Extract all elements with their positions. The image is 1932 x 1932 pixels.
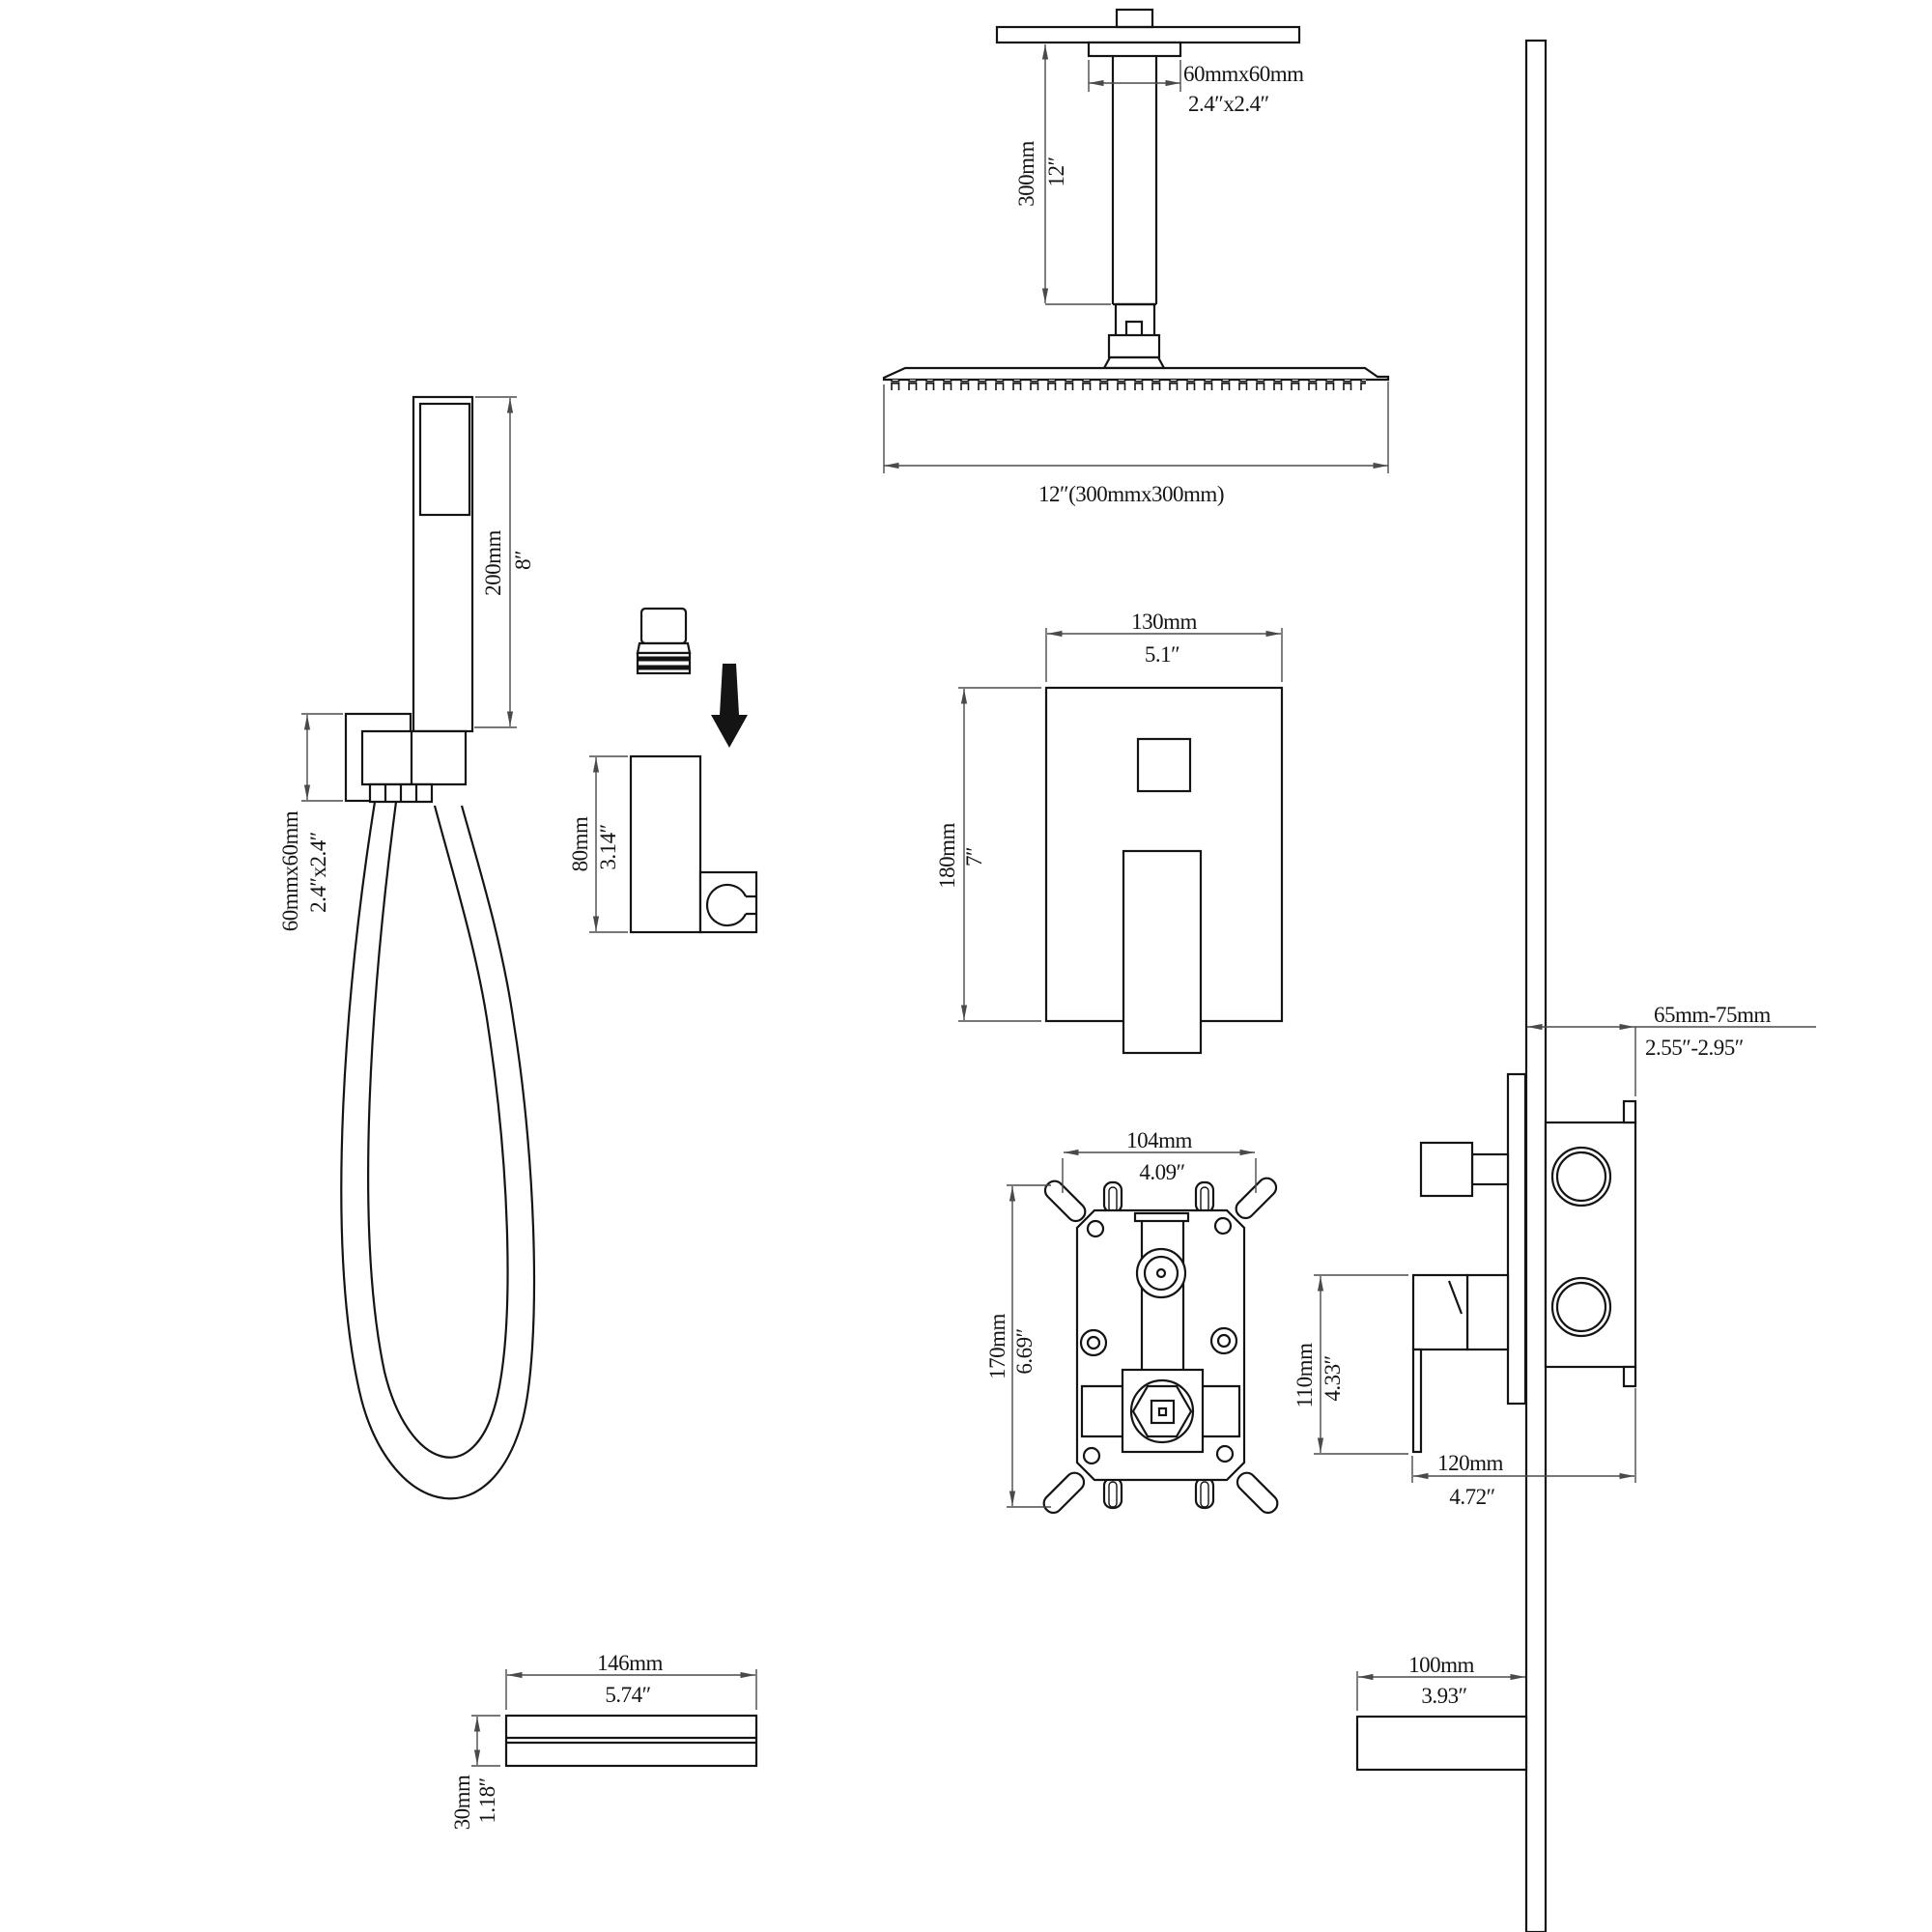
valve-body-tab-bottom xyxy=(1624,1367,1635,1386)
hose-inner-curve xyxy=(368,802,507,1458)
handheld-wand xyxy=(413,397,472,731)
dim-label-ceiling-mount-in: 2.4″x2.4″ xyxy=(1188,92,1269,116)
valve-cartridge-square xyxy=(1151,1401,1174,1423)
shower-arm xyxy=(1113,56,1156,304)
spout-side-body xyxy=(1357,1717,1526,1770)
ceiling-anchor-block xyxy=(1117,10,1152,27)
dim-label-plate-w-mm: 130mm xyxy=(1131,610,1197,634)
ceiling-flange xyxy=(1089,43,1180,56)
valve-screw-top-left xyxy=(1088,1221,1103,1236)
rain-shower-head xyxy=(884,368,1388,380)
dim-label-projection-mm: 120mm xyxy=(1437,1451,1503,1475)
valve-screw-top-right xyxy=(1215,1218,1231,1234)
dim-label-valve-h-mm: 170mm xyxy=(985,1314,1009,1379)
diverter-knob-stem xyxy=(1472,1154,1508,1184)
install-arrow-icon xyxy=(711,664,748,748)
spout-side-group: 100mm 3.93″ xyxy=(1357,1653,1526,1770)
dim-label-spout-side-in: 3.93″ xyxy=(1421,1684,1466,1708)
holder-body xyxy=(631,756,700,932)
valve-tab-bottom-right xyxy=(1234,1469,1281,1517)
dim-label-plate-w-in: 5.1″ xyxy=(1145,642,1179,667)
dim-label-head: 12″(300mmx300mm) xyxy=(1038,482,1224,506)
handheld-hose-nut xyxy=(362,731,466,784)
valve-side-view-group: 65mm-75mm 2.55″-2.95″ 110mm 4.33″ 120mm … xyxy=(1293,1003,1816,1509)
ceiling-shower-group: 60mmx60mm 2.4″x2.4″ 300mm 12″ 12″(300mmx… xyxy=(884,10,1388,506)
wall-section xyxy=(1526,41,1546,1932)
dim-label-arm-in: 12″ xyxy=(1044,156,1068,186)
rough-valve-group: 104mm 4.09″ 170mm 6.69″ xyxy=(985,1128,1281,1517)
dim-label-arm-mm: 300mm xyxy=(1014,141,1038,207)
valve-tab-bottom-left xyxy=(1040,1469,1088,1517)
hose-connector-ribs xyxy=(370,784,432,802)
shower-nozzle-row xyxy=(891,380,1366,390)
dim-label-depth-mm: 65mm-75mm xyxy=(1654,1003,1771,1027)
valve-side-port-bottom xyxy=(1552,1278,1610,1336)
spout-front-group: 146mm 5.74″ 30mm 1.18″ xyxy=(450,1651,756,1830)
spout-front-body xyxy=(506,1716,756,1766)
lever-arm-side xyxy=(1413,1350,1421,1452)
dim-label-handheld-in: 8″ xyxy=(511,551,535,570)
dim-label-spout-h-mm: 30mm xyxy=(450,1775,474,1830)
dim-ext-head xyxy=(884,382,1388,473)
valve-port-right-outer xyxy=(1211,1328,1236,1353)
valve-pipe-cap xyxy=(1135,1213,1188,1221)
valve-body-tab-top xyxy=(1624,1101,1635,1122)
trim-plate-side xyxy=(1508,1074,1525,1404)
wall-hatch-strip xyxy=(1526,41,1546,1932)
dim-ext-ceiling-mount xyxy=(1089,60,1180,92)
valve-screw-bottom-right xyxy=(1217,1446,1233,1462)
connector-threads xyxy=(638,653,690,673)
dim-label-handheld-mm: 200mm xyxy=(481,530,505,596)
valve-side-port-top xyxy=(1552,1148,1610,1206)
valve-tab-top-left xyxy=(1041,1178,1089,1225)
diverter-knob-side xyxy=(1421,1143,1472,1196)
valve-screw-bottom-left xyxy=(1084,1448,1099,1463)
dim-label-plate-h-in: 7″ xyxy=(962,847,986,867)
dim-label-valve-h-in: 6.69″ xyxy=(1012,1328,1037,1374)
dim-label-depth-in: 2.55″-2.95″ xyxy=(1645,1036,1744,1060)
drawing-page: 60mmx60mm 2.4″x2.4″ 300mm 12″ 12″(300mmx… xyxy=(0,0,1932,1932)
dim-label-plate-h-mm: 180mm xyxy=(935,823,959,889)
dim-label-bracket-in: 2.4″x2.4″ xyxy=(306,832,330,913)
trim-plate-group: 130mm 5.1″ 180mm 7″ xyxy=(935,610,1282,1053)
valve-port-left-outer xyxy=(1081,1330,1106,1355)
dim-label-spout-h-in: 1.18″ xyxy=(475,1777,499,1823)
hose-outer-curve xyxy=(341,802,534,1498)
holder-clip-block xyxy=(700,872,756,932)
dim-label-valve-w-mm: 104mm xyxy=(1126,1128,1192,1152)
arm-connector-flare xyxy=(1104,357,1164,368)
holder-detail-group: 80mm 3.14″ xyxy=(568,609,756,932)
dim-label-valve-w-in: 4.09″ xyxy=(1139,1160,1184,1184)
trim-handle xyxy=(1123,851,1201,1053)
shower-system-diagram: 60mmx60mm 2.4″x2.4″ 300mm 12″ 12″(300mmx… xyxy=(0,0,1932,1932)
dim-label-projection-in: 4.72″ xyxy=(1449,1485,1494,1509)
dim-label-lever-in: 4.33″ xyxy=(1321,1355,1345,1401)
diverter-button xyxy=(1138,739,1190,791)
dim-label-bracket-mm: 60mmx60mm xyxy=(278,810,302,931)
connector-flange xyxy=(638,643,690,653)
arm-connector-base xyxy=(1109,335,1159,357)
connector-cap xyxy=(641,609,686,643)
ceiling-hatch-strip xyxy=(997,27,1299,43)
dim-label-spout-w-mm: 146mm xyxy=(597,1651,663,1675)
dim-label-ceiling-mount-mm: 60mmx60mm xyxy=(1183,62,1304,86)
lever-body-side xyxy=(1413,1275,1467,1350)
dim-label-spout-side-mm: 100mm xyxy=(1408,1653,1474,1677)
dim-label-spout-w-in: 5.74″ xyxy=(605,1683,650,1707)
dim-label-holder-in: 3.14″ xyxy=(596,824,620,869)
handheld-shower-group: 200mm 8″ 60mmx60mm 2.4″x2.4″ xyxy=(278,397,535,1498)
dim-ext-spout-height xyxy=(471,1716,500,1766)
dim-label-lever-mm: 110mm xyxy=(1293,1343,1317,1408)
lever-escutcheon-side xyxy=(1467,1275,1508,1350)
dim-label-holder-mm: 80mm xyxy=(568,816,592,871)
arm-connector-upper xyxy=(1116,304,1154,335)
